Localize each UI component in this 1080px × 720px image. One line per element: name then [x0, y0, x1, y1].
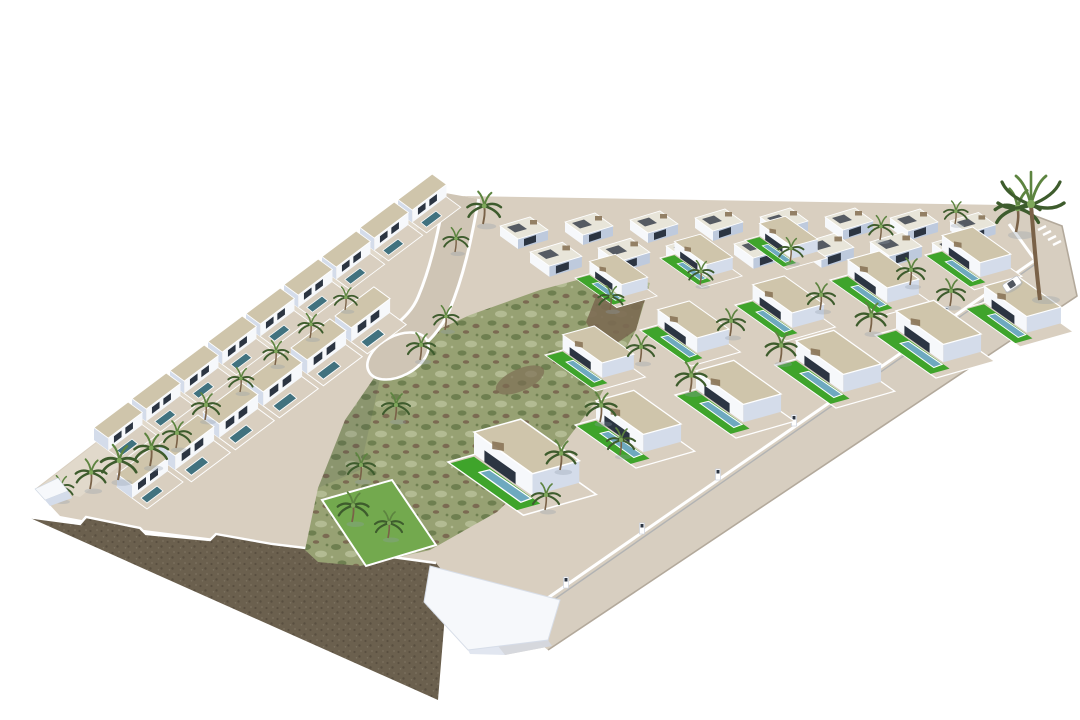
development-aerial-render: [0, 0, 1080, 720]
gate-pillar: [640, 523, 645, 534]
gate-pillar: [564, 577, 569, 588]
tree-shadow: [1032, 296, 1060, 304]
render-stage: [0, 0, 1080, 720]
palm-crown: [1027, 200, 1035, 208]
gate-pillar: [716, 469, 721, 480]
